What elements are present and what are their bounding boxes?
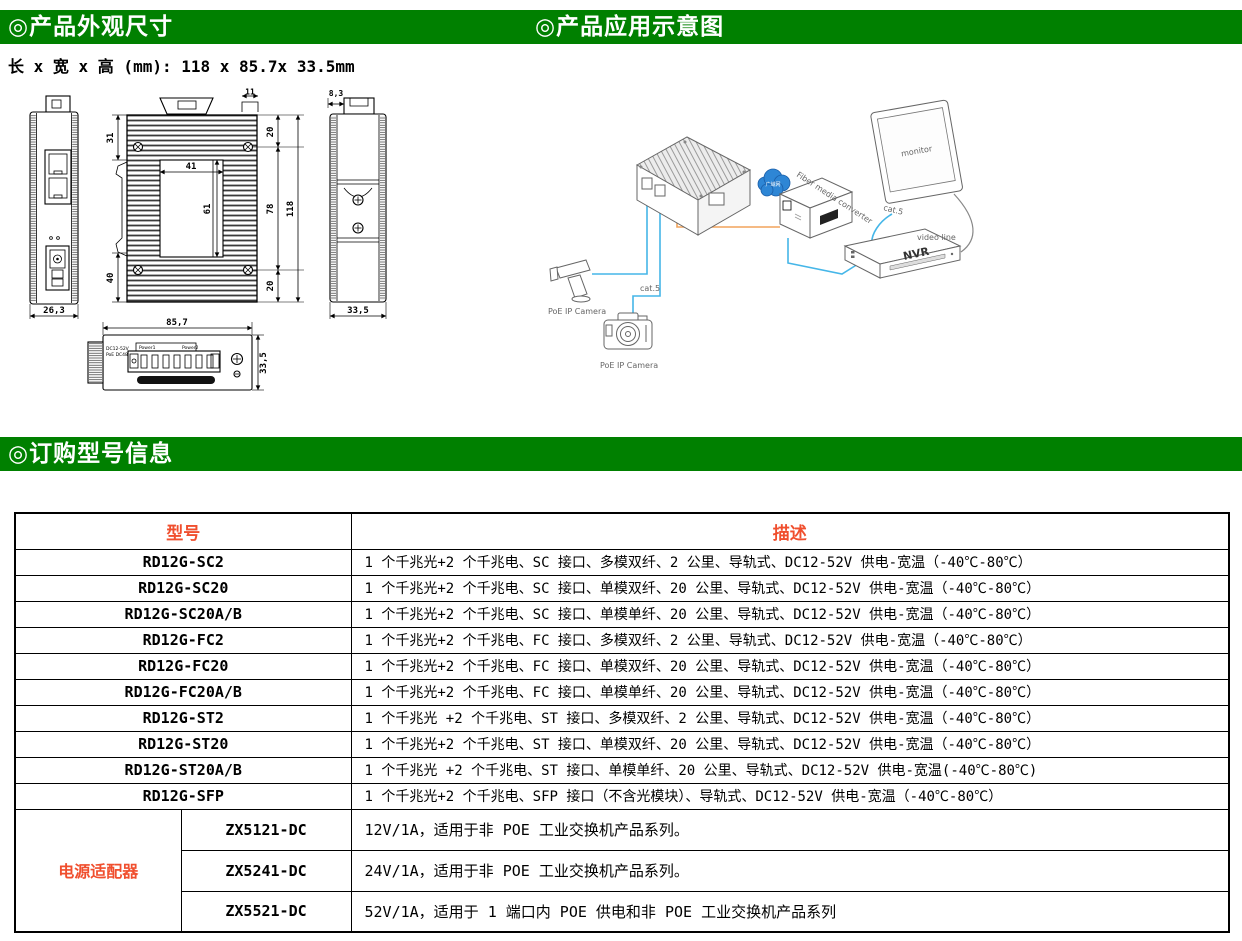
section-title-dimensions: ◎产品外观尺寸 [8, 10, 173, 44]
terminal-block [128, 351, 220, 372]
description-cell: 1 个千兆光+2 个千兆电、SFP 接口（不含光模块）、导轨式、DC12-52V… [351, 783, 1229, 809]
datasheet-page: ◎产品外观尺寸 ◎产品应用示意图 长 x 宽 x 高 (mm): 118 x 8… [0, 0, 1242, 941]
media-converter-illustration: Fiber media converter [780, 170, 874, 238]
model-cell: RD12G-SC20A/B [15, 601, 351, 627]
description-cell: 1 个千兆光+2 个千兆电、FC 接口、单模单纤、20 公里、导轨式、DC12-… [351, 679, 1229, 705]
poe-camera-bullet-illustration [550, 260, 590, 302]
model-cell: RD12G-FC20 [15, 653, 351, 679]
column-header-description: 描述 [351, 513, 1229, 549]
description-cell: 1 个千兆光+2 个千兆电、SC 接口、单模单纤、20 公里、导轨式、DC12-… [351, 601, 1229, 627]
video-line-cable [954, 194, 973, 252]
section-title-ordering: ◎订购型号信息 [8, 437, 173, 471]
terminal-voltage-label: DC12-52V [106, 346, 130, 352]
adapter-model-cell: ZX5241-DC [181, 850, 351, 891]
table-row: RD12G-FC20A/B 1 个千兆光+2 个千兆电、FC 接口、单模单纤、2… [15, 679, 1229, 705]
description-cell: 1 个千兆光+2 个千兆电、FC 接口、单模双纤、20 公里、导轨式、DC12-… [351, 653, 1229, 679]
adapter-model-cell: ZX5121-DC [181, 809, 351, 850]
adapter-row: 电源适配器 ZX5121-DC 12V/1A，适用于非 POE 工业交换机产品系… [15, 809, 1229, 850]
front-view-drawing: 26,3 [30, 96, 78, 319]
dim-33-5-bottom: 33,5 [259, 352, 269, 374]
dim-clip-11: 11 [245, 88, 255, 97]
dim-20-bottom: 20 [266, 281, 276, 292]
adapter-row: ZX5241-DC 24V/1A，适用于非 POE 工业交换机产品系列。 [15, 850, 1229, 891]
model-cell: RD12G-SC20 [15, 575, 351, 601]
sc-fiber-port [46, 246, 69, 290]
poe-camera-dslr-illustration [604, 313, 652, 349]
model-cell: RD12G-FC2 [15, 627, 351, 653]
adapter-row: ZX5521-DC 52V/1A，适用于 1 端口内 POE 供电和非 POE … [15, 891, 1229, 932]
model-cell: RD12G-ST20 [15, 731, 351, 757]
back-view-drawing: 11 31 40 41 61 [106, 88, 304, 302]
adapter-model-cell: ZX5521-DC [181, 891, 351, 932]
switch-port [642, 178, 652, 189]
camera1-label: PoE IP Camera [548, 307, 606, 316]
rj45-ports-front [45, 150, 71, 204]
dim-41: 41 [186, 162, 197, 172]
description-cell: 1 个千兆光+2 个千兆电、SC 接口、多模双纤、2 公里、导轨式、DC12-5… [351, 549, 1229, 575]
adapter-group-label: 电源适配器 [15, 809, 181, 932]
monitor-illustration: monitor [870, 100, 963, 204]
section-bar-ordering: ◎订购型号信息 [0, 437, 1242, 471]
dim-31: 31 [106, 133, 116, 144]
table-row: RD12G-SFP 1 个千兆光+2 个千兆电、SFP 接口（不含光模块）、导轨… [15, 783, 1229, 809]
description-cell: 1 个千兆光+2 个千兆电、ST 接口、单模双纤、20 公里、导轨式、DC12-… [351, 731, 1229, 757]
description-cell: 1 个千兆光 +2 个千兆电、ST 接口、多模双纤、2 公里、导轨式、DC12-… [351, 705, 1229, 731]
adapter-description-cell: 52V/1A，适用于 1 端口内 POE 供电和非 POE 工业交换机产品系列 [351, 891, 1229, 932]
size-note: 长 x 宽 x 高 (mm): 118 x 85.7x 33.5mm [8, 53, 355, 77]
din-rail-clip [116, 162, 127, 256]
industrial-switch-illustration [637, 137, 750, 235]
model-cell: RD12G-SFP [15, 783, 351, 809]
dim-40: 40 [106, 273, 116, 284]
wan-cloud-label: 广域网 [765, 181, 780, 188]
dim-61: 61 [203, 204, 213, 215]
bottom-view-drawing: 85,7 DC12-52V PoE DC48-57V Power1 Power2 [88, 318, 269, 390]
dim-78: 78 [266, 204, 276, 215]
section-bar-top: ◎产品外观尺寸 ◎产品应用示意图 [0, 10, 1242, 44]
description-cell: 1 个千兆光+2 个千兆电、FC 接口、多模双纤、2 公里、导轨式、DC12-5… [351, 627, 1229, 653]
dimension-drawings: 26,3 11 31 [10, 88, 540, 418]
table-row: RD12G-ST2 1 个千兆光 +2 个千兆电、ST 接口、多模双纤、2 公里… [15, 705, 1229, 731]
model-cell: RD12G-ST20A/B [15, 757, 351, 783]
switch-fiber-port [709, 193, 724, 205]
model-cell: RD12G-SC2 [15, 549, 351, 575]
power1-label: Power1 [139, 345, 156, 351]
model-cell: RD12G-ST2 [15, 705, 351, 731]
ordering-table: 型号 描述 RD12G-SC2 1 个千兆光+2 个千兆电、SC 接口、多模双纤… [14, 512, 1230, 933]
console-slot [137, 376, 215, 384]
dim-20-top: 20 [266, 127, 276, 138]
dim-front-width: 26,3 [43, 306, 65, 316]
description-cell: 1 个千兆光+2 个千兆电、SC 接口、单模双纤、20 公里、导轨式、DC12-… [351, 575, 1229, 601]
side-view-drawing: 8,3 33,5 [328, 89, 386, 319]
adapter-description-cell: 24V/1A，适用于非 POE 工业交换机产品系列。 [351, 850, 1229, 891]
table-row: RD12G-ST20 1 个千兆光+2 个千兆电、ST 接口、单模双纤、20 公… [15, 731, 1229, 757]
dim-85-7: 85,7 [166, 318, 188, 328]
video-line-label: video line [917, 233, 956, 242]
section-title-application: ◎产品应用示意图 [535, 10, 724, 44]
switch-port [655, 185, 665, 196]
application-diagram: 广域网 Fiber media converter monitor [540, 88, 1020, 398]
cat5-label-top: cat.5 [883, 203, 905, 217]
table-row: RD12G-ST20A/B 1 个千兆光 +2 个千兆电、ST 接口、单模单纤、… [15, 757, 1229, 783]
camera2-label: PoE IP Camera [600, 361, 658, 370]
table-row: RD12G-FC2 1 个千兆光+2 个千兆电、FC 接口、多模双纤、2 公里、… [15, 627, 1229, 653]
dim-33-5-side: 33,5 [347, 306, 369, 316]
model-cell: RD12G-FC20A/B [15, 679, 351, 705]
cat5-label-bottom: cat.5 [640, 284, 660, 293]
dim-118: 118 [286, 201, 296, 217]
table-row: RD12G-SC20A/B 1 个千兆光+2 个千兆电、SC 接口、单模单纤、2… [15, 601, 1229, 627]
column-header-model: 型号 [15, 513, 351, 549]
table-header-row: 型号 描述 [15, 513, 1229, 549]
dim-8-3: 8,3 [329, 89, 344, 98]
table-row: RD12G-SC2 1 个千兆光+2 个千兆电、SC 接口、多模双纤、2 公里、… [15, 549, 1229, 575]
description-cell: 1 个千兆光 +2 个千兆电、ST 接口、单模单纤、20 公里、导轨式、DC12… [351, 757, 1229, 783]
table-row: RD12G-SC20 1 个千兆光+2 个千兆电、SC 接口、单模双纤、20 公… [15, 575, 1229, 601]
table-row: RD12G-FC20 1 个千兆光+2 个千兆电、FC 接口、单模双纤、20 公… [15, 653, 1229, 679]
adapter-description-cell: 12V/1A，适用于非 POE 工业交换机产品系列。 [351, 809, 1229, 850]
